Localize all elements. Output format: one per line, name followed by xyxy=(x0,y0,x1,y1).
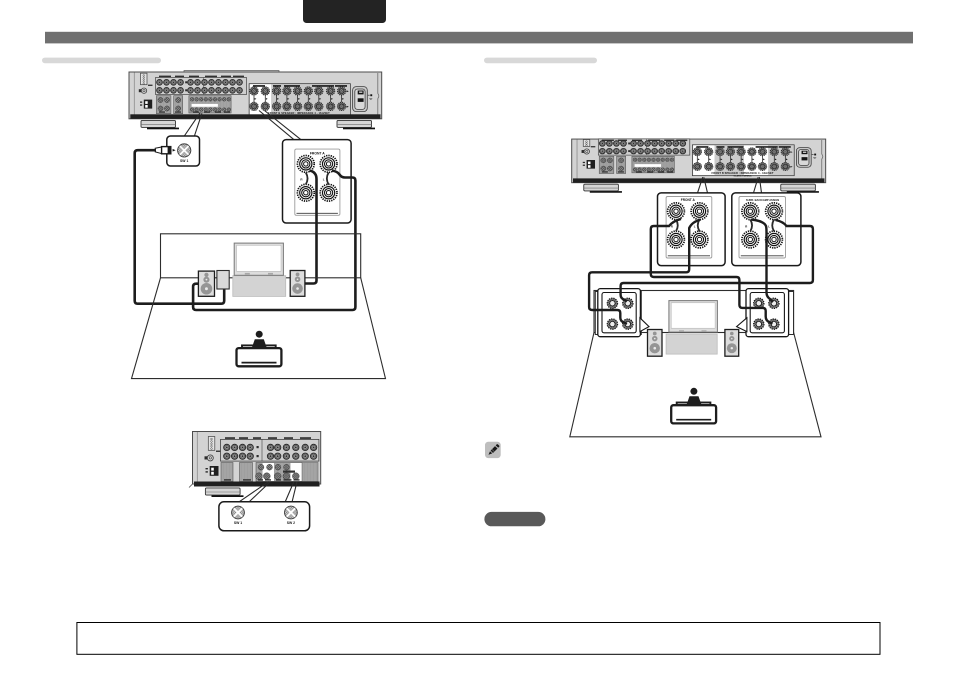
svg-text:L: L xyxy=(323,178,325,182)
svg-text:FRONT A: FRONT A xyxy=(681,198,696,202)
svg-text:SW 1: SW 1 xyxy=(180,159,188,163)
svg-text:CLASS 2 WIRING: CLASS 2 WIRING xyxy=(734,174,752,177)
svg-text:L: L xyxy=(694,225,696,229)
svg-text:FRONT A: FRONT A xyxy=(310,152,325,156)
svg-text:SW 2: SW 2 xyxy=(287,521,295,525)
svg-text:SW 1: SW 1 xyxy=(234,521,242,525)
svg-text:SURR. BACK/AMP ASSIGN: SURR. BACK/AMP ASSIGN xyxy=(746,198,779,202)
svg-text:L: L xyxy=(768,225,770,229)
